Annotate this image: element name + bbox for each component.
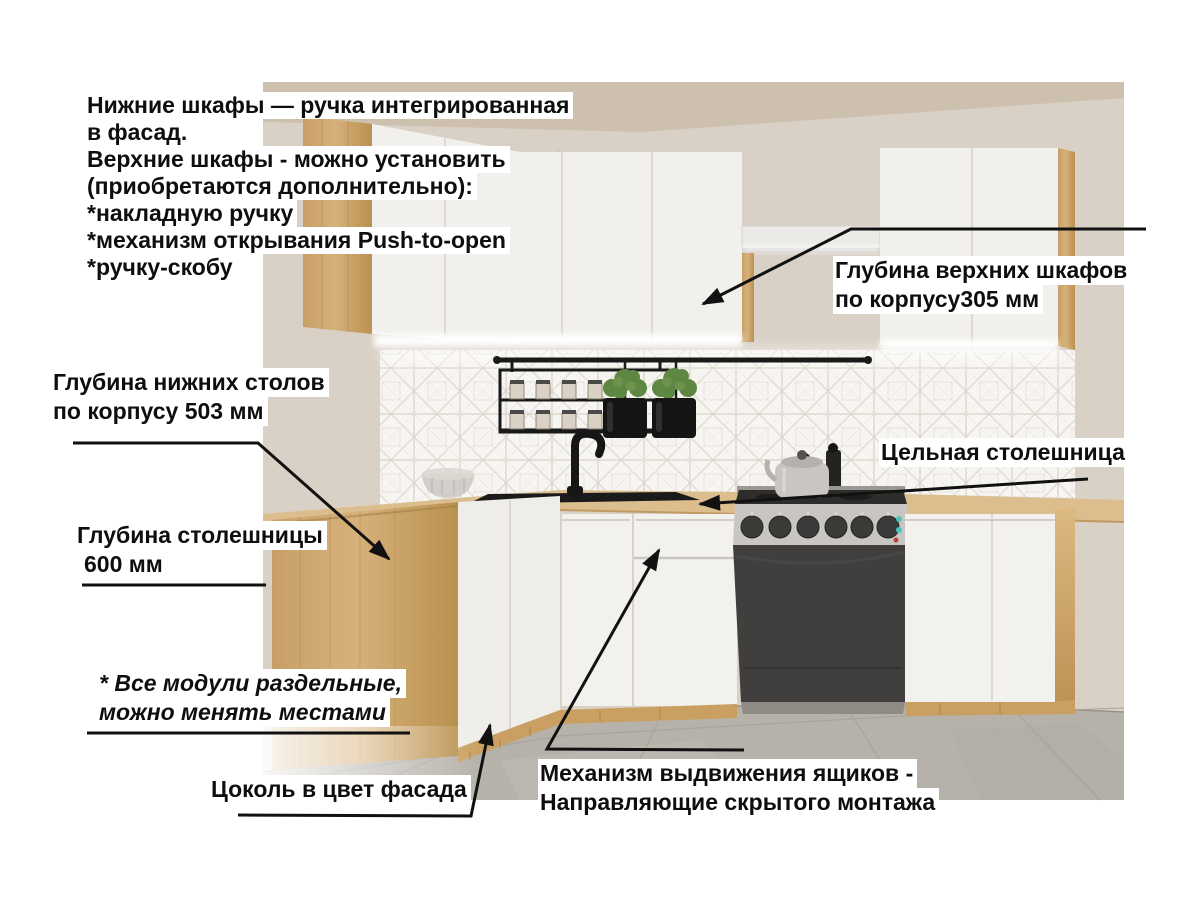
stove: [733, 450, 909, 714]
base-center-cabinets: [562, 514, 737, 706]
label-line: Глубина верхних шкафов: [833, 256, 1131, 285]
label-line: *механизм открывания Push-to-open: [85, 227, 573, 254]
annotated-kitchen-figure: Нижние шкафы — ручка интегрированная в ф…: [0, 0, 1201, 900]
label-line: можно менять местами: [97, 698, 406, 727]
label-line: по корпусу 503 мм: [51, 397, 329, 426]
label-drawer-mechanism: Механизм выдвижения ящиков - Направляющи…: [538, 759, 939, 817]
label-handles-and-options: Нижние шкафы — ручка интегрированная в ф…: [85, 92, 573, 281]
label-line: Цоколь в цвет фасада: [209, 775, 471, 804]
backsplash: [380, 348, 1075, 512]
label-line: 600 мм: [75, 550, 327, 579]
label-line: Глубина нижних столов: [51, 368, 329, 397]
base-angled-front: [458, 496, 560, 748]
label-line: Нижние шкафы — ручка интегрированная: [85, 92, 573, 119]
base-cabinets-right: [905, 508, 1075, 702]
label-line: *ручку-скобу: [85, 254, 573, 281]
label-line: (приобретаются дополнительно):: [85, 173, 573, 200]
label-line: *накладную ручку: [85, 200, 573, 227]
label-separate-modules-note: * Все модули раздельные, можно менять ме…: [97, 669, 406, 727]
label-countertop-depth: Глубина столешницы 600 мм: [75, 521, 327, 579]
label-solid-countertop: Цельная столешница: [879, 438, 1129, 467]
label-line: по корпусу305 мм: [833, 285, 1131, 314]
label-line: Верхние шкафы - можно установить: [85, 146, 573, 173]
label-base-cabinet-depth: Глубина нижних столов по корпусу 503 мм: [51, 368, 329, 426]
label-line: в фасад.: [85, 119, 573, 146]
label-line: Глубина столешницы: [75, 521, 327, 550]
label-plinth-color: Цоколь в цвет фасада: [209, 775, 471, 804]
label-line: Механизм выдвижения ящиков -: [538, 759, 939, 788]
label-line: Направляющие скрытого монтажа: [538, 788, 939, 817]
label-upper-cabinet-depth: Глубина верхних шкафов по корпусу305 мм: [833, 256, 1131, 314]
label-line: Цельная столешница: [879, 438, 1129, 467]
upper-cabinets-right: [880, 148, 1075, 350]
label-line: * Все модули раздельные,: [97, 669, 406, 698]
